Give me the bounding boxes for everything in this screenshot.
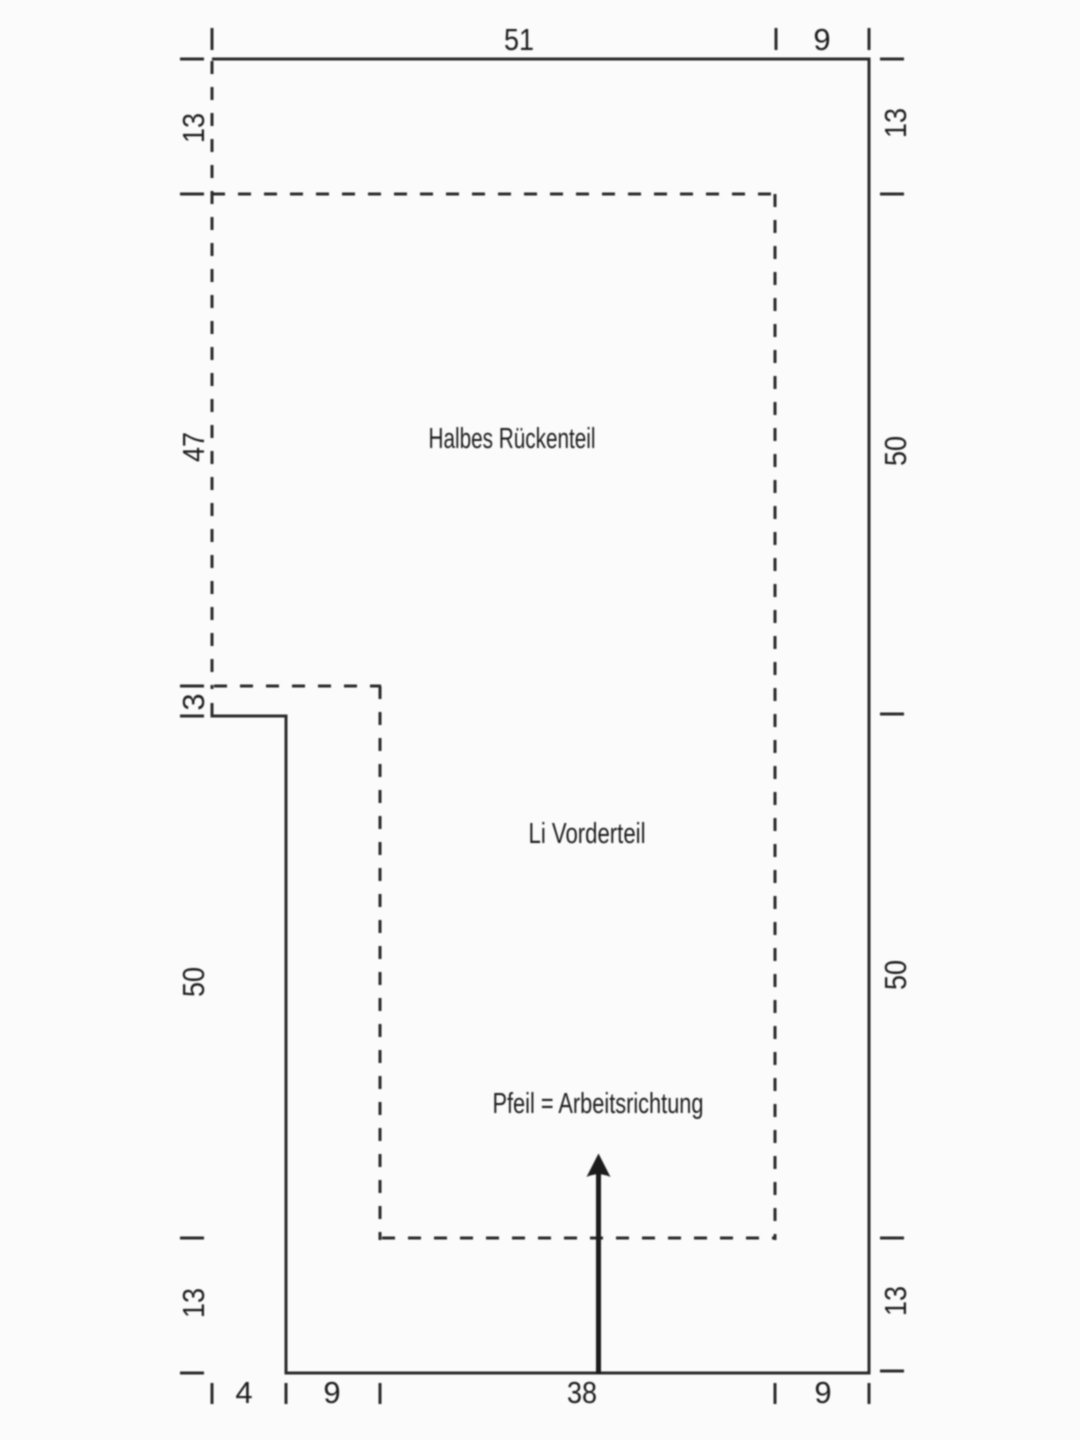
svg-text:13: 13 [878, 1286, 913, 1316]
svg-text:47: 47 [176, 432, 211, 462]
svg-text:50: 50 [878, 960, 913, 990]
svg-text:9: 9 [814, 1375, 831, 1410]
svg-text:Pfeil = Arbeitsrichtung: Pfeil = Arbeitsrichtung [493, 1088, 704, 1120]
svg-text:13: 13 [176, 1288, 211, 1318]
svg-text:9: 9 [323, 1375, 340, 1410]
svg-text:50: 50 [878, 436, 913, 466]
svg-text:Halbes Rückenteil: Halbes Rückenteil [429, 423, 596, 455]
svg-text:13: 13 [878, 108, 913, 138]
svg-text:51: 51 [504, 22, 534, 57]
svg-text:9: 9 [813, 22, 830, 57]
svg-text:Li Vorderteil: Li Vorderteil [529, 818, 646, 850]
svg-text:38: 38 [567, 1375, 597, 1410]
svg-text:13: 13 [176, 113, 211, 143]
svg-text:50: 50 [176, 967, 211, 997]
svg-text:4: 4 [235, 1375, 252, 1410]
svg-text:3: 3 [176, 693, 211, 710]
